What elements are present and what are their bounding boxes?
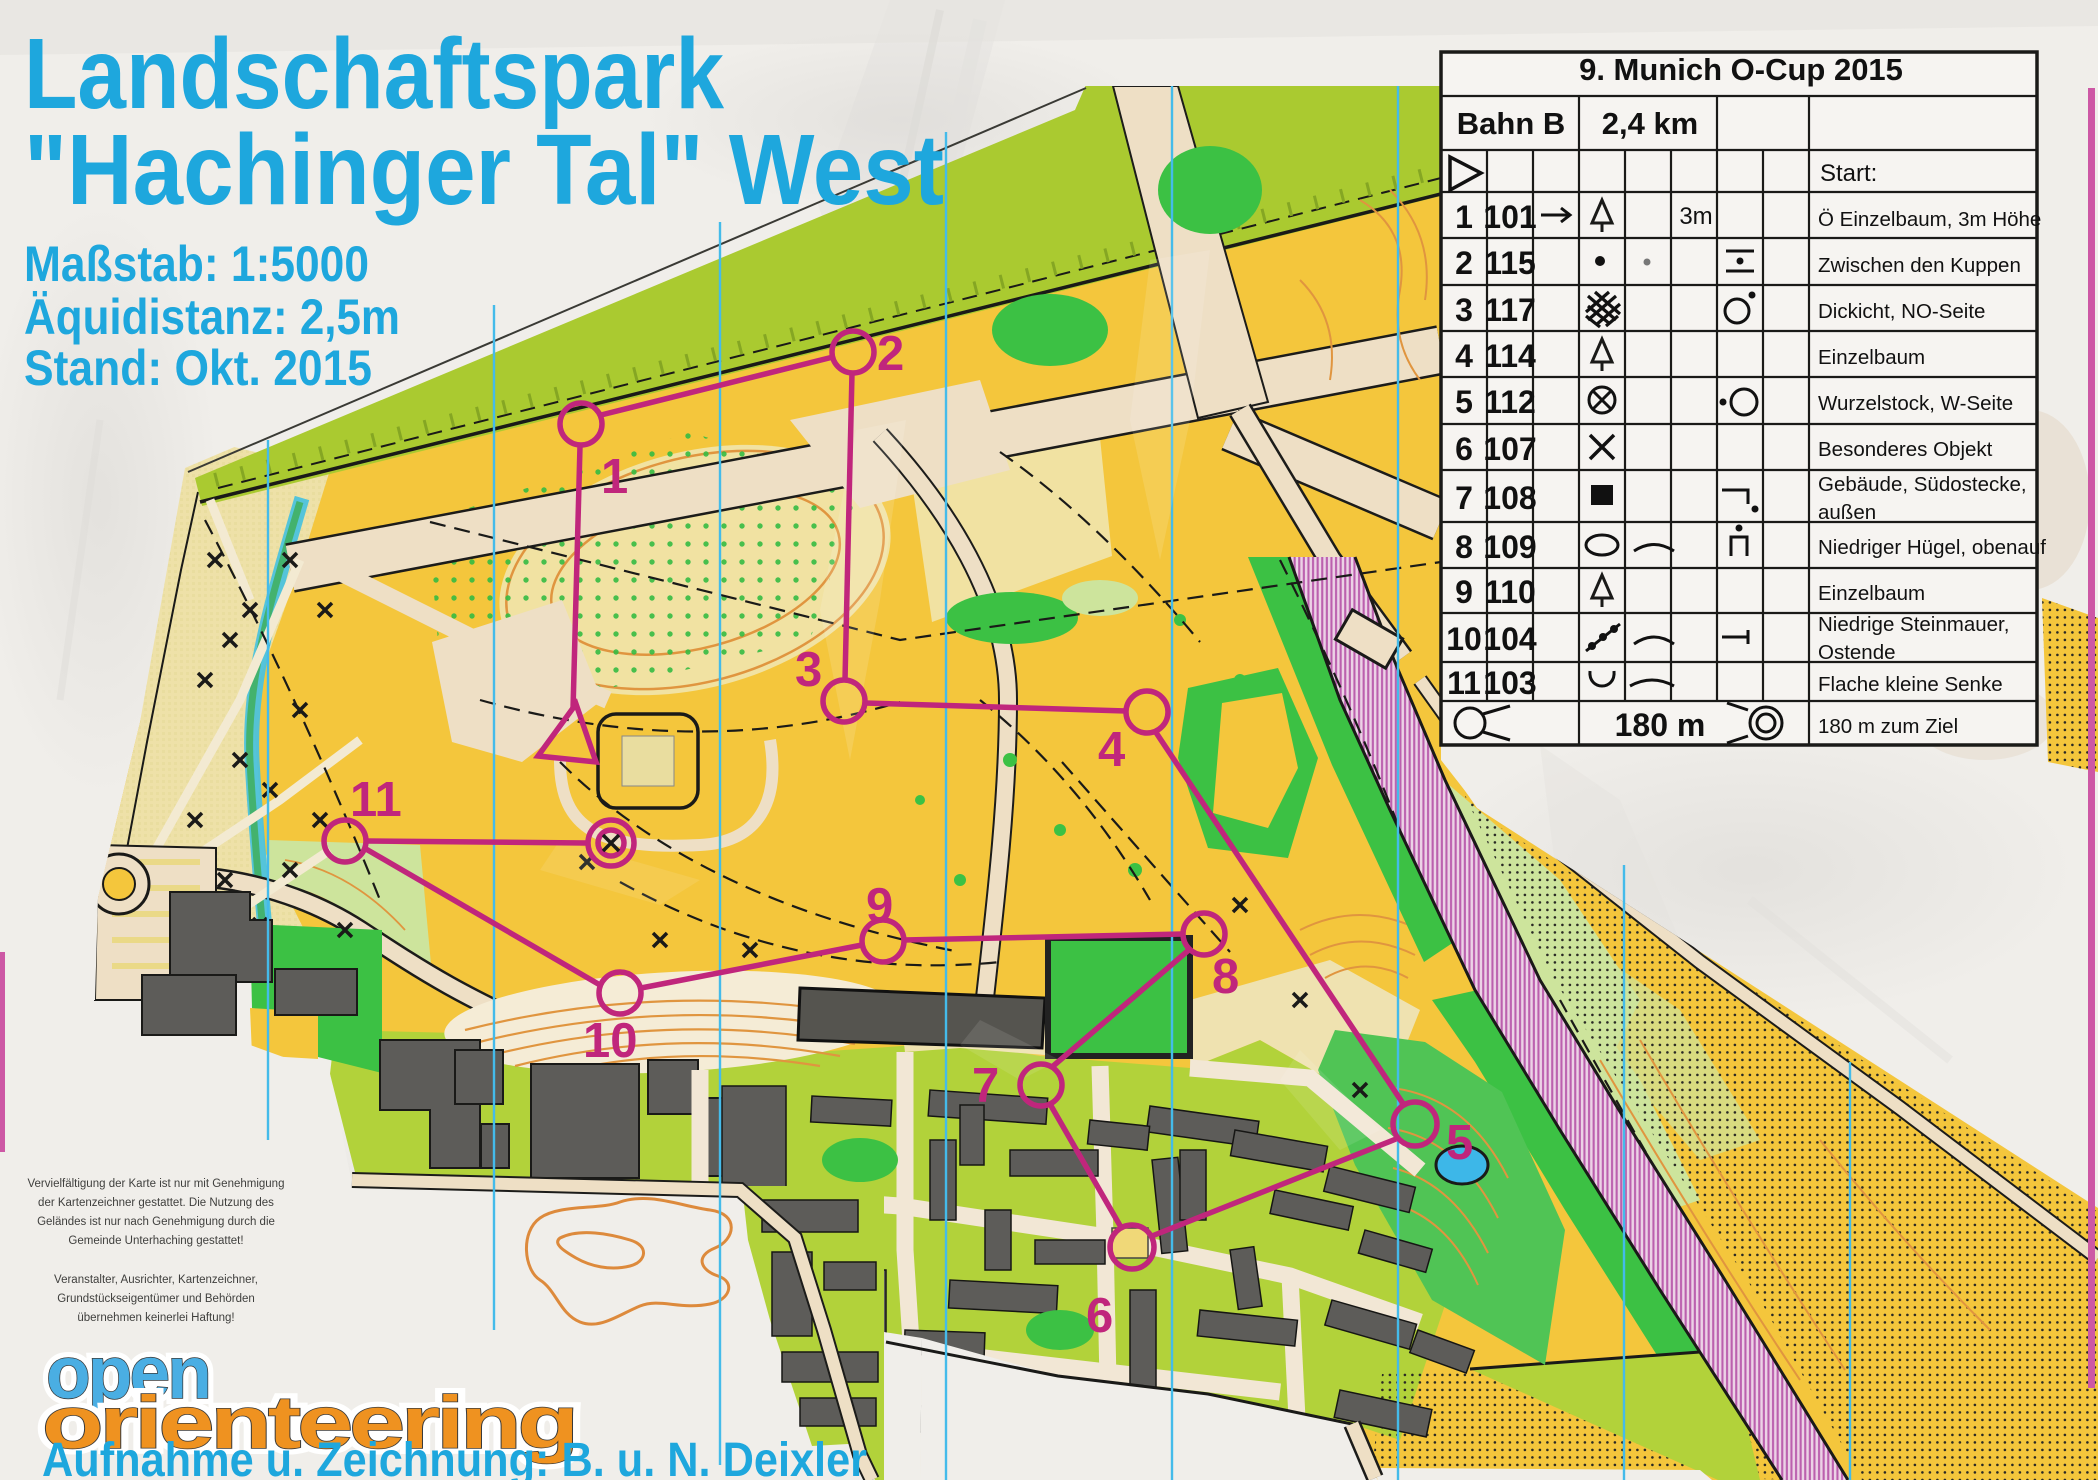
svg-text:übernehmen keinerlei Haftung!: übernehmen keinerlei Haftung! (77, 1312, 234, 1324)
svg-text:8: 8 (1455, 529, 1473, 565)
svg-text:103: 103 (1483, 665, 1536, 701)
svg-text:Gemeinde Unterhaching gestatte: Gemeinde Unterhaching gestattet! (68, 1235, 243, 1247)
svg-text:11: 11 (350, 773, 402, 827)
svg-text:115: 115 (1484, 245, 1536, 281)
svg-text:Zwischen den Kuppen: Zwischen den Kuppen (1818, 254, 2021, 277)
svg-text:8: 8 (1212, 950, 1239, 1004)
svg-text:110: 110 (1484, 574, 1536, 610)
svg-text:10: 10 (583, 1014, 638, 1068)
svg-text:außen: außen (1818, 501, 1876, 524)
svg-text:Dickicht, NO-Seite: Dickicht, NO-Seite (1818, 300, 1985, 323)
svg-text:Stand: Okt. 2015: Stand: Okt. 2015 (24, 340, 372, 396)
svg-text:4: 4 (1455, 338, 1473, 374)
svg-text:1: 1 (1455, 199, 1473, 235)
svg-text:Niedrige Steinmauer,: Niedrige Steinmauer, (1818, 613, 2009, 636)
svg-text:Maßstab: 1:5000: Maßstab: 1:5000 (24, 236, 369, 292)
svg-text:Äquidistanz: 2,5m: Äquidistanz: 2,5m (24, 289, 400, 345)
svg-text:180 m zum Ziel: 180 m zum Ziel (1818, 715, 1958, 738)
svg-text:114: 114 (1484, 338, 1536, 374)
svg-text:Start:: Start: (1820, 160, 1877, 187)
svg-text:Grundstückseigentümer und Behö: Grundstückseigentümer und Behörden (57, 1293, 255, 1305)
svg-text:117: 117 (1484, 292, 1536, 328)
svg-text:3m: 3m (1679, 203, 1712, 230)
svg-text:5: 5 (1455, 384, 1473, 420)
svg-text:7: 7 (1455, 480, 1473, 516)
svg-text:101: 101 (1483, 199, 1536, 235)
svg-text:9: 9 (866, 879, 893, 933)
svg-text:1: 1 (601, 450, 628, 504)
svg-text:2,4 km: 2,4 km (1602, 106, 1699, 141)
svg-text:112: 112 (1484, 384, 1536, 420)
svg-text:Bahn B: Bahn B (1457, 106, 1566, 141)
svg-text:3: 3 (795, 643, 822, 697)
svg-text:107: 107 (1483, 431, 1536, 467)
svg-text:Vervielfältigung der Karte ist: Vervielfältigung der Karte ist nur mit G… (28, 1178, 285, 1190)
svg-text:Flache kleine Senke: Flache kleine Senke (1818, 673, 2003, 696)
svg-text:Ostende: Ostende (1818, 641, 1896, 664)
svg-text:3: 3 (1455, 292, 1473, 328)
svg-text:Besonderes Objekt: Besonderes Objekt (1818, 438, 1993, 461)
svg-text:11: 11 (1447, 665, 1481, 701)
svg-text:6: 6 (1086, 1289, 1113, 1343)
svg-text:2: 2 (1455, 245, 1473, 281)
svg-text:6: 6 (1455, 431, 1473, 467)
svg-text:108: 108 (1483, 480, 1536, 516)
svg-text:Ö Einzelbaum, 3m Höhe: Ö Einzelbaum, 3m Höhe (1818, 208, 2041, 231)
svg-text:104: 104 (1483, 621, 1537, 657)
svg-text:Geländes ist nur nach Genehmig: Geländes ist nur nach Genehmigung durch … (37, 1216, 275, 1228)
svg-text:109: 109 (1483, 529, 1536, 565)
svg-text:7: 7 (972, 1059, 999, 1113)
svg-text:Einzelbaum: Einzelbaum (1818, 582, 1925, 605)
svg-text:9: 9 (1455, 574, 1473, 610)
svg-text:180 m: 180 m (1615, 707, 1706, 743)
svg-text:4: 4 (1098, 723, 1125, 777)
svg-text:10: 10 (1446, 621, 1482, 657)
svg-text:2: 2 (877, 327, 904, 381)
svg-text:Wurzelstock, W-Seite: Wurzelstock, W-Seite (1818, 392, 2013, 415)
svg-text:Aufnahme u. Zeichnung: B. u. N: Aufnahme u. Zeichnung: B. u. N. Deixler (42, 1434, 867, 1480)
svg-text:Einzelbaum: Einzelbaum (1818, 346, 1925, 369)
svg-text:9. Munich O-Cup 2015: 9. Munich O-Cup 2015 (1579, 52, 1903, 87)
svg-text:Veranstalter, Ausrichter, Kart: Veranstalter, Ausrichter, Kartenzeichner… (54, 1274, 258, 1286)
svg-text:Niedriger Hügel, obenauf: Niedriger Hügel, obenauf (1818, 536, 2046, 559)
svg-text:"Hachinger Tal" West: "Hachinger Tal" West (24, 114, 944, 226)
svg-text:5: 5 (1446, 1116, 1473, 1170)
svg-text:der Kartenzeichner gestattet.: der Kartenzeichner gestattet. Die Nutzun… (38, 1197, 274, 1209)
svg-text:Gebäude, Südostecke,: Gebäude, Südostecke, (1818, 473, 2027, 496)
